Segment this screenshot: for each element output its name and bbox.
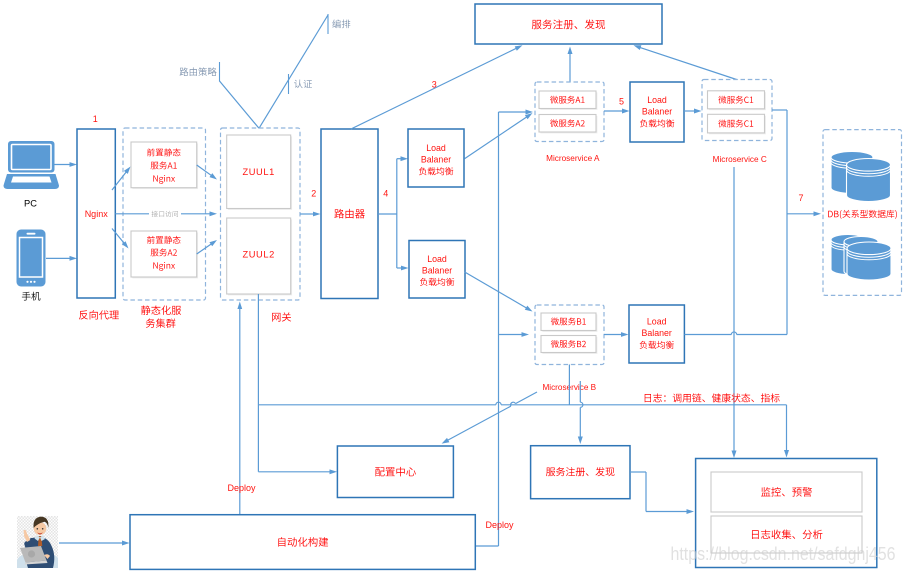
svg-text:Nginx: Nginx bbox=[85, 209, 109, 219]
svg-text:4: 4 bbox=[383, 188, 388, 198]
svg-text:Microservice A: Microservice A bbox=[546, 154, 600, 163]
svg-text:ZUUL2: ZUUL2 bbox=[242, 250, 274, 260]
svg-text:PC: PC bbox=[24, 198, 37, 208]
svg-text:Balaner: Balaner bbox=[422, 265, 452, 275]
svg-text:ZUUL1: ZUUL1 bbox=[242, 167, 274, 177]
svg-text:Load: Load bbox=[426, 143, 446, 153]
svg-text:Load: Load bbox=[647, 95, 667, 105]
svg-text:Load: Load bbox=[647, 317, 667, 327]
svg-text:5: 5 bbox=[619, 96, 624, 106]
svg-text:1: 1 bbox=[93, 114, 98, 124]
svg-text:Balaner: Balaner bbox=[421, 154, 451, 164]
svg-text:Deploy: Deploy bbox=[227, 483, 256, 493]
svg-text:https://blog.csdn.net/safdghj4: https://blog.csdn.net/safdghj456 bbox=[671, 543, 896, 564]
svg-text:Load: Load bbox=[427, 254, 447, 264]
svg-text:7: 7 bbox=[798, 193, 803, 203]
svg-text:Balaner: Balaner bbox=[642, 328, 672, 338]
svg-text:Deploy: Deploy bbox=[485, 520, 514, 530]
svg-text:Balaner: Balaner bbox=[642, 107, 672, 117]
svg-text:Microservice C: Microservice C bbox=[713, 155, 767, 164]
svg-text:2: 2 bbox=[311, 188, 316, 198]
